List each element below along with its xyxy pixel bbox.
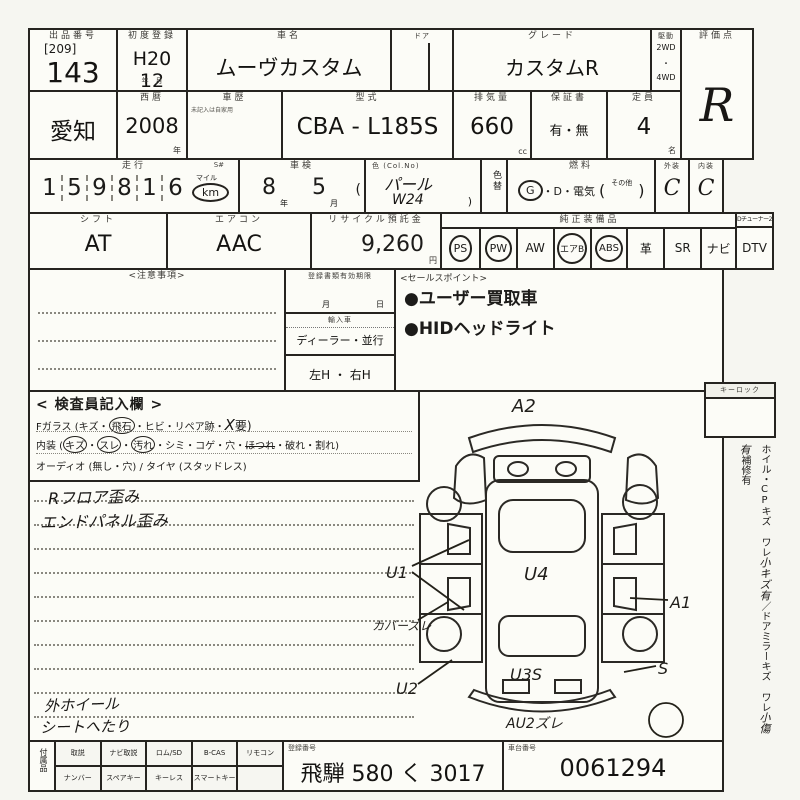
mileage-digit: 1	[138, 175, 163, 201]
color-change-cell: 色替	[480, 158, 508, 214]
inspector-title: < 検査員記入欄 >	[36, 394, 163, 414]
car-name: ムーヴカスタム	[188, 52, 390, 82]
wheel-rear-left	[427, 617, 461, 651]
handle-value: 左H ・ 右H	[286, 366, 394, 383]
warranty-cell: 保証書 有・無	[530, 90, 608, 160]
pw-circled: PW	[485, 235, 513, 262]
equipment-item-ps: PS	[442, 228, 479, 268]
first-registration-cell: 初度登録 H20 12 年 月	[116, 28, 188, 92]
damage-code-a2: A2	[511, 396, 536, 417]
int-rest: ・シミ・コゲ・穴・	[155, 441, 245, 452]
ps-circled: PS	[449, 235, 473, 262]
document-expiry-label: 登録書類有効期限	[286, 270, 394, 283]
writing-line	[34, 668, 414, 670]
import-value: ディーラー・並行	[286, 332, 394, 348]
fuel-cell: 燃料 G ・D・電気 ( その他 )	[506, 158, 656, 214]
equipment-item-dtv: DTV	[735, 228, 772, 268]
registration-number-label: 登録番号	[288, 743, 316, 753]
sales-points-label: <セールスポイント>	[400, 271, 487, 284]
door-label: ドア	[392, 30, 452, 43]
history-cell: 車歴 未記入は自家用	[186, 90, 283, 160]
inspector-note-handwritten: シートへたり	[40, 715, 130, 738]
chassis-number-label: 車台番号	[508, 743, 536, 753]
accessory-item	[236, 765, 284, 792]
headlight-left	[508, 462, 528, 476]
interior-grade: C	[690, 176, 722, 201]
score-value: R	[682, 78, 752, 132]
drive-type-label: 駆動	[652, 30, 680, 43]
accessory-item: ナンバー	[54, 765, 102, 792]
int-struck-item: ほつれ	[245, 441, 275, 452]
capacity-label: 定員	[608, 92, 680, 105]
aircon-label: エアコン	[168, 214, 310, 227]
shaken-year: 8	[262, 175, 276, 200]
mileage-digit: 5	[63, 175, 88, 201]
inspector-note-handwritten: 外ホイール	[44, 693, 120, 717]
recycle-fee-unit: 円	[429, 255, 437, 266]
auction-number: 143	[30, 56, 116, 89]
km-unit-circled: km	[192, 183, 229, 202]
color-code: W24	[392, 192, 424, 208]
keylock-label: キーロック	[706, 384, 774, 399]
sales-point: ●ユーザー買取車	[404, 284, 538, 309]
notes-line	[38, 340, 276, 342]
equipment-item-navi: ナビ	[700, 228, 735, 268]
score-cell: 評価点 R	[680, 28, 754, 160]
writing-line	[34, 572, 414, 574]
fuel-label: 燃料	[508, 160, 654, 173]
mileage-digit: 1	[38, 175, 63, 201]
fuel-paren-open: (	[599, 181, 605, 200]
accessory-item: B-CAS	[191, 740, 239, 767]
shaken-label: 車検	[240, 160, 364, 173]
door-divider	[428, 43, 430, 92]
interior-grade-label: 内装	[690, 160, 722, 173]
chassis-number: 0061294	[504, 754, 722, 782]
mirror-right	[626, 454, 658, 503]
recycle-fee-label: リサイクル預託金	[312, 214, 440, 227]
notes-label: <注意事項>	[30, 270, 284, 283]
import-label: 輸入車	[286, 314, 394, 328]
accessory-item: スペアキー	[100, 765, 148, 792]
writing-line	[34, 644, 414, 646]
damage-code-s: S	[658, 659, 668, 678]
headlight-right	[556, 462, 576, 476]
side-panel-right	[602, 514, 664, 662]
fuel-gasoline-circled: G	[518, 180, 543, 201]
keylock-cell: キーロック	[704, 382, 776, 438]
model-code-label: 型式	[283, 92, 452, 105]
writing-line	[34, 620, 414, 622]
damage-code-a1: A1	[669, 593, 691, 612]
drive-4wd: 4WD	[652, 73, 680, 82]
registration-number-cell: 登録番号 飛騨 580 く 3017	[282, 740, 504, 792]
dtv-label: DTV	[742, 241, 767, 255]
registration-number: 飛騨 580 く 3017	[284, 756, 502, 788]
capacity-value: 4	[608, 114, 680, 140]
chassis-number-cell: 車台番号 0061294	[502, 740, 724, 792]
side-windows-left	[448, 524, 470, 610]
scanned-auction-sheet: { "header": { "auction_label": "出品番号", "…	[0, 0, 800, 800]
damage-code-u2: U2	[396, 679, 418, 698]
navi-label: ナビ	[707, 240, 731, 257]
model-code: CBA - L185S	[283, 114, 452, 140]
airbag-circled: エアB	[557, 233, 587, 264]
int-prefix: 内装 (	[36, 441, 63, 452]
s-arrow	[624, 666, 656, 672]
mileage-label: 走行	[30, 160, 238, 173]
auction-bracket: [209]	[44, 42, 76, 56]
mile-unit: マイル	[196, 173, 217, 183]
accessory-item: スマートキー	[191, 765, 239, 792]
capacity-unit: 名	[668, 145, 676, 156]
inspector-note-handwritten: エンドパネル歪み	[40, 507, 168, 533]
shaken-year-unit: 年	[280, 198, 288, 209]
line-sep	[36, 431, 412, 432]
warranty-label: 保証書	[532, 92, 606, 105]
door-cell: ドア	[390, 28, 454, 92]
mileage-digit: 8	[113, 175, 138, 201]
interior-line: 内装 (キズ・スレ・汚れ・シミ・コゲ・穴・ほつれ・破れ・割れ)	[36, 436, 339, 453]
int-circled-yogore: 汚れ	[131, 436, 155, 453]
equipment-items: PS PW AW エアB ABS 革 SR ナビ DTV	[442, 228, 772, 268]
accessory-grid-row2: ナンバー スペアキー キーレス スマートキー	[54, 765, 284, 792]
equipment-cell: 純正装備品 Dチューナー2 PS PW AW エアB ABS 革 SR ナビ D…	[440, 212, 774, 270]
shaken-paren: (	[356, 182, 361, 198]
u2-arrow	[418, 660, 452, 684]
dot: ・	[121, 441, 131, 452]
first-registration-units: 年 月	[118, 76, 186, 86]
int-tail: ・破れ・割れ)	[275, 441, 339, 452]
margin-handwritten-small-scratch: 小キズ有	[758, 557, 771, 601]
notes-line	[38, 312, 276, 314]
recycle-fee-cell: リサイクル預託金 9,260 円	[310, 212, 442, 270]
color-change-label: 色替	[490, 170, 503, 192]
equipment-item-sr: SR	[663, 228, 700, 268]
accessory-label-cell: 付属品	[28, 740, 56, 792]
drive-2wd: 2WD	[652, 43, 680, 52]
history-label: 車歴	[188, 92, 281, 105]
car-name-cell: 車名 ムーヴカスタム	[186, 28, 392, 92]
sales-points-cell: <セールスポイント> ●ユーザー買取車 ●HIDヘッドライト	[394, 268, 724, 392]
score-label: 評価点	[682, 30, 752, 43]
margin-notes: ホイル・CPキズ ワレ小キズ有／ドアミラーキズ ワレ小傷有補修有	[726, 444, 774, 744]
notes-cell: <注意事項>	[28, 268, 286, 392]
fuel-options: G ・D・電気 ( その他 )	[518, 180, 645, 201]
document-expiry-month: 月	[322, 299, 330, 310]
exterior-grade-label: 外装	[656, 160, 688, 173]
region-cell: 愛知	[28, 90, 118, 160]
displacement-label: 排気量	[454, 92, 530, 105]
equipment-item-abs: ABS	[590, 228, 627, 268]
accessory-item: キーレス	[145, 765, 193, 792]
model-code-cell: 型式 CBA - L185S	[281, 90, 454, 160]
exterior-grade: C	[656, 176, 688, 201]
sales-point: ●HIDヘッドライト	[404, 314, 556, 339]
writing-line	[34, 548, 414, 550]
margin-printed-wheel: ホイル・CPキズ ワレ	[759, 444, 770, 557]
color-cell: 色 (Col.No) パール W24 )	[364, 158, 482, 214]
accessory-grid-row1: 取説 ナビ取説 ロム/SD B-CAS リモコン	[54, 740, 284, 767]
rear-bumper	[469, 690, 615, 712]
leather-label: 革	[640, 240, 652, 257]
accessory-item: リモコン	[236, 740, 284, 767]
first-registration-label: 初度登録	[118, 30, 186, 43]
shift-cell: シフト AT	[28, 212, 168, 270]
shaken-month: 5	[312, 175, 326, 200]
windshield	[499, 500, 585, 552]
equipment-item-aw: AW	[516, 228, 553, 268]
writing-line	[34, 596, 414, 598]
auction-number-cell: 出品番号 [209] 143	[28, 28, 118, 92]
side-panel-right-dividers	[602, 564, 664, 614]
equipment-corner-label: Dチューナー2	[735, 214, 772, 228]
year-unit: 年	[173, 145, 181, 156]
inspector-circle-mark	[649, 703, 683, 737]
import-cell: 輸入車 ディーラー・並行	[284, 312, 396, 356]
tail-light-right	[555, 680, 581, 693]
equipment-item-pw: PW	[479, 228, 516, 268]
aircon-value: AAC	[168, 232, 310, 257]
mileage-digit: 6	[163, 175, 188, 201]
int-circled-sure: スレ	[97, 436, 121, 453]
accessory-label: 付属品	[38, 748, 49, 772]
accessory-grid: 取説 ナビ取説 ロム/SD B-CAS リモコン ナンバー スペアキー キーレス…	[54, 740, 284, 792]
year-label: 西暦	[118, 92, 186, 105]
document-expiry-cell: 登録書類有効期限 月 日	[284, 268, 396, 314]
displacement-value: 660	[454, 114, 530, 140]
shift-value: AT	[30, 232, 166, 257]
grade-label: グレード	[454, 30, 650, 43]
exterior-grade-cell: 外装 C	[654, 158, 690, 214]
margin-printed-mirror: ／ドアミラーキズ ワレ	[759, 601, 770, 712]
handle-cell: 左H ・ 右H	[284, 354, 396, 392]
capacity-cell: 定員 4 名	[606, 90, 682, 160]
front-bumper	[469, 425, 615, 452]
region-value: 愛知	[30, 112, 116, 146]
wheel-rear-right	[623, 617, 657, 651]
side-windows-right	[614, 524, 636, 610]
damage-note-au2: AU2ズレ	[505, 716, 563, 732]
equipment-label: 純正装備品	[442, 214, 737, 229]
line-sep	[36, 453, 412, 454]
audio-tire-line: オーディオ (無し・穴) / タイヤ (スタッドレス)	[36, 458, 247, 473]
abs-circled: ABS	[595, 235, 623, 262]
damage-code-u3s: U3S	[510, 665, 542, 684]
sr-label: SR	[675, 241, 691, 255]
year-value: 2008	[118, 114, 186, 138]
mileage-cell: 走行 S# 1 5 9 8 1 6 マイル km	[28, 158, 240, 214]
rear-window	[499, 616, 585, 656]
drive-dot: ・	[652, 58, 680, 69]
fuel-other-label: その他	[611, 178, 632, 188]
recycle-fee-value: 9,260	[361, 232, 424, 257]
car-name-label: 車名	[188, 30, 390, 43]
inspector-notes-box: < 検査員記入欄 > Fガラス (キズ・飛石・ヒビ・リペア跡・X要) 内装 (キ…	[28, 390, 420, 482]
serial-label: S#	[214, 161, 224, 169]
side-panel-left-dividers	[420, 564, 482, 614]
margin-printed-repair: 補修有	[739, 455, 750, 485]
damage-code-u1: U1	[386, 563, 408, 582]
side-panel-left	[420, 514, 482, 662]
shaken-month-unit: 月	[330, 198, 338, 209]
color-paren: )	[468, 195, 472, 208]
int-circled-kizu: キズ	[63, 436, 87, 453]
shaken-cell: 車検 8 年 5 月 (	[238, 158, 366, 214]
damage-code-u4: U4	[524, 564, 549, 585]
displacement-cell: 排気量 660 cc	[452, 90, 532, 160]
shift-label: シフト	[30, 214, 166, 227]
aircon-cell: エアコン AAC	[166, 212, 312, 270]
equipment-item-leather: 革	[626, 228, 663, 268]
car-damage-diagram: A2 U1 カバーズレ U2 U4 U3S A1 S AU2ズレ	[372, 392, 722, 740]
fuel-other-options: ・D・電気	[543, 183, 595, 199]
drive-type-cell: 駆動 2WD ・ 4WD	[650, 28, 682, 92]
fuel-paren-close: )	[638, 181, 644, 200]
interior-grade-cell: 内装 C	[688, 158, 724, 214]
mileage-digit: 9	[88, 175, 113, 201]
warranty-value: 有・無	[532, 120, 606, 139]
notes-line	[38, 368, 276, 370]
aw-label: AW	[526, 241, 545, 255]
mileage-digits: 1 5 9 8 1 6	[38, 175, 188, 201]
history-note: 未記入は自家用	[191, 105, 233, 114]
accessory-item: 取説	[54, 740, 102, 767]
grade-value: カスタムR	[454, 52, 650, 81]
year-cell: 西暦 2008 年	[116, 90, 188, 160]
document-expiry-day: 日	[376, 299, 384, 310]
inspector-note-handwritten: Rフロア歪み	[48, 483, 140, 509]
dot: ・	[87, 441, 97, 452]
grade-cell: グレード カスタムR	[452, 28, 652, 92]
damage-note-cover: カバーズレ	[372, 619, 431, 633]
equipment-item-airbag: エアB	[553, 228, 590, 268]
accessory-item: ナビ取説	[100, 740, 148, 767]
accessory-item: ロム/SD	[145, 740, 193, 767]
wheel-front-left	[427, 487, 461, 521]
displacement-unit: cc	[518, 147, 527, 156]
